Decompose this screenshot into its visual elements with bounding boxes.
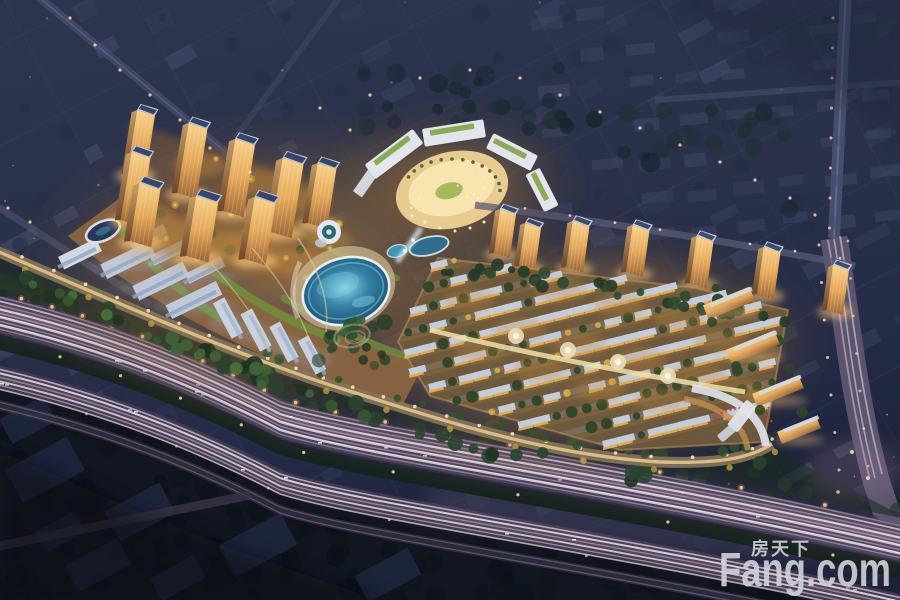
svg-text:Fang.com: Fang.com (719, 544, 891, 597)
